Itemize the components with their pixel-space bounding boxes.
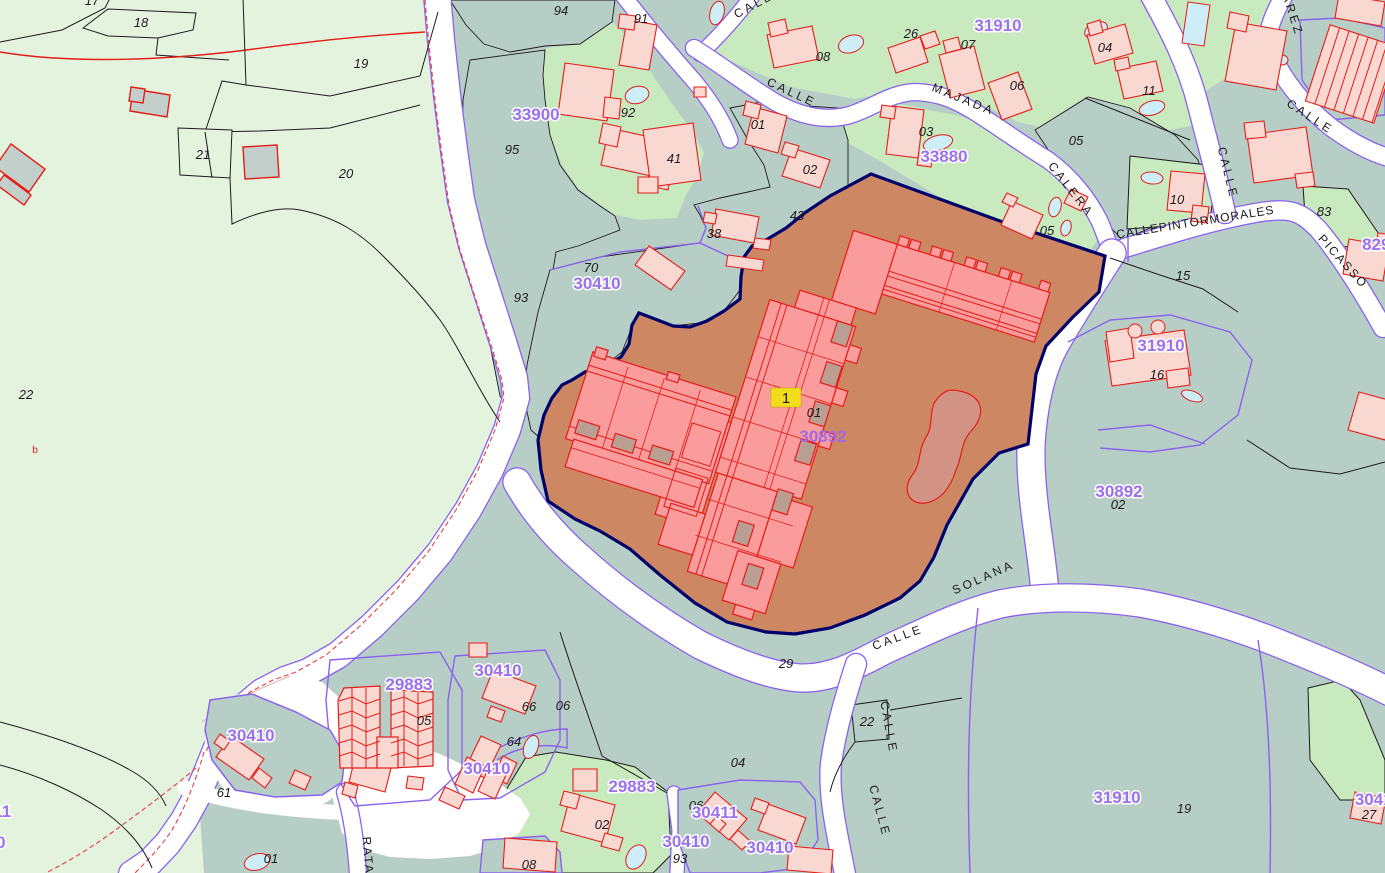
svg-text:93: 93 bbox=[514, 290, 529, 305]
svg-text:92: 92 bbox=[621, 105, 636, 120]
svg-text:01: 01 bbox=[751, 117, 765, 132]
svg-text:30410: 30410 bbox=[463, 759, 510, 778]
svg-text:43: 43 bbox=[790, 208, 805, 223]
svg-text:30411: 30411 bbox=[0, 802, 11, 821]
svg-text:29: 29 bbox=[778, 656, 793, 671]
svg-text:8294: 8294 bbox=[1362, 235, 1385, 254]
svg-text:30410: 30410 bbox=[573, 274, 620, 293]
svg-text:33880: 33880 bbox=[920, 147, 967, 166]
svg-text:93: 93 bbox=[673, 851, 688, 866]
svg-text:95: 95 bbox=[505, 142, 520, 157]
svg-text:05: 05 bbox=[1069, 133, 1084, 148]
svg-text:41: 41 bbox=[667, 151, 681, 166]
svg-text:83: 83 bbox=[1317, 204, 1332, 219]
svg-text:94: 94 bbox=[554, 3, 568, 18]
svg-text:05: 05 bbox=[1040, 223, 1055, 238]
svg-text:19: 19 bbox=[354, 56, 368, 71]
svg-text:20: 20 bbox=[338, 166, 354, 181]
svg-text:61: 61 bbox=[217, 785, 231, 800]
svg-text:08: 08 bbox=[522, 857, 537, 872]
svg-text:1: 1 bbox=[782, 390, 790, 407]
svg-text:04: 04 bbox=[731, 755, 745, 770]
svg-text:31910: 31910 bbox=[1137, 336, 1184, 355]
svg-text:29883: 29883 bbox=[608, 777, 655, 796]
svg-text:30410: 30410 bbox=[0, 833, 6, 852]
svg-text:10: 10 bbox=[1170, 192, 1185, 207]
svg-text:30410: 30410 bbox=[474, 661, 521, 680]
svg-text:07: 07 bbox=[961, 37, 976, 52]
svg-text:04: 04 bbox=[1098, 40, 1112, 55]
svg-text:91: 91 bbox=[634, 11, 648, 26]
svg-text:31910: 31910 bbox=[974, 16, 1021, 35]
svg-text:30410: 30410 bbox=[227, 726, 274, 745]
svg-text:30410: 30410 bbox=[746, 838, 793, 857]
svg-text:66: 66 bbox=[522, 699, 537, 714]
svg-text:01: 01 bbox=[807, 405, 821, 420]
svg-text:11: 11 bbox=[1142, 83, 1156, 98]
svg-text:17: 17 bbox=[85, 0, 100, 8]
svg-text:30411: 30411 bbox=[692, 803, 738, 822]
svg-text:31910: 31910 bbox=[1093, 788, 1140, 807]
svg-text:19: 19 bbox=[1177, 801, 1191, 816]
svg-text:01: 01 bbox=[264, 851, 278, 866]
svg-text:06: 06 bbox=[556, 698, 571, 713]
svg-text:05: 05 bbox=[417, 713, 432, 728]
svg-text:22: 22 bbox=[18, 387, 34, 402]
svg-text:30410: 30410 bbox=[662, 832, 709, 851]
svg-text:64: 64 bbox=[507, 734, 521, 749]
svg-text:30892: 30892 bbox=[1095, 482, 1142, 501]
svg-text:27: 27 bbox=[1361, 807, 1377, 822]
svg-text:b: b bbox=[32, 445, 38, 456]
svg-text:18: 18 bbox=[134, 15, 149, 30]
svg-text:22: 22 bbox=[859, 714, 875, 729]
svg-text:26: 26 bbox=[903, 26, 919, 41]
svg-text:16: 16 bbox=[1150, 367, 1165, 382]
svg-text:33900: 33900 bbox=[512, 105, 559, 124]
svg-text:06: 06 bbox=[1010, 78, 1025, 93]
svg-text:30411: 30411 bbox=[1355, 790, 1385, 809]
svg-text:02: 02 bbox=[803, 162, 818, 177]
svg-text:29883: 29883 bbox=[385, 675, 432, 694]
svg-text:03: 03 bbox=[919, 124, 934, 139]
svg-text:38: 38 bbox=[707, 226, 722, 241]
svg-text:21: 21 bbox=[195, 147, 210, 162]
svg-text:30892: 30892 bbox=[799, 427, 846, 446]
svg-text:15: 15 bbox=[1176, 268, 1191, 283]
svg-text:70: 70 bbox=[584, 260, 599, 275]
svg-text:02: 02 bbox=[595, 817, 610, 832]
svg-text:08: 08 bbox=[816, 49, 831, 64]
